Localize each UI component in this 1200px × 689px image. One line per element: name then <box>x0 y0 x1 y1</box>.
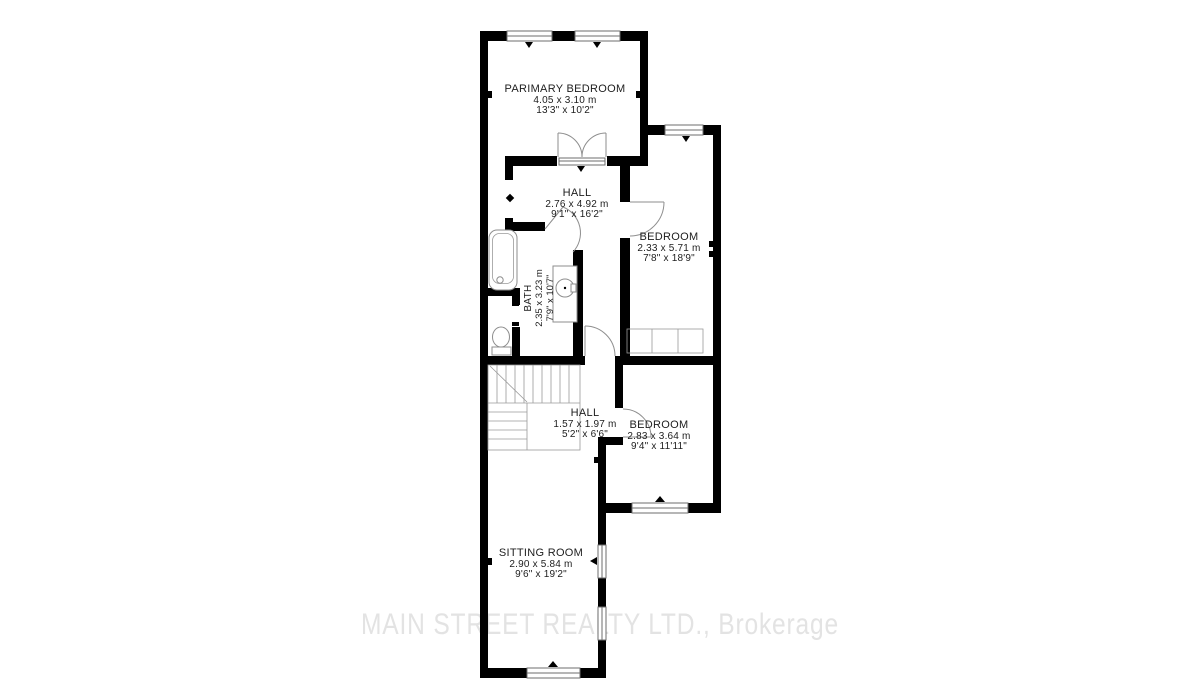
floor-plan-svg: MAIN STREET REALTY LTD., Brokerage <box>0 0 1200 689</box>
window <box>598 545 606 578</box>
window <box>575 31 620 41</box>
window <box>632 503 688 513</box>
window <box>507 31 552 41</box>
room-imperial: 5'2" x 6'6" <box>562 429 608 440</box>
room-metric: 2.35 x 3.23 m <box>534 269 545 327</box>
room-imperial: 7'8" x 18'9" <box>643 253 695 264</box>
room-label-bedroom-lower: BEDROOM 2.83 x 3.64 m 9'4" x 11'11" <box>627 419 690 452</box>
room-imperial: 9'6" x 19'2" <box>515 569 567 580</box>
toilet-icon <box>492 327 511 355</box>
room-imperial: 13'3" x 10'2" <box>536 105 594 116</box>
room-name: PARIMARY BEDROOM <box>505 83 626 95</box>
floor-plan-page: MAIN STREET REALTY LTD., Brokerage <box>0 0 1200 689</box>
room-name: BATH <box>523 284 534 311</box>
room-imperial: 7'9" x 10'7" <box>545 275 556 322</box>
room-imperial: 9'4" x 11'11" <box>631 441 687 452</box>
window <box>527 668 580 678</box>
room-name: BEDROOM <box>630 419 689 431</box>
room-name: HALL <box>571 407 600 419</box>
room-label-bedroom-right: BEDROOM 2.33 x 5.71 m 7'8" x 18'9" <box>637 231 700 264</box>
room-imperial: 9'1" x 16'2" <box>551 209 603 220</box>
room-name: BEDROOM <box>640 231 699 243</box>
window <box>665 125 703 135</box>
room-name: HALL <box>563 187 592 199</box>
room-name: SITTING ROOM <box>499 547 583 559</box>
sink-vanity-icon <box>553 266 577 322</box>
bathtub-icon <box>489 230 517 290</box>
window <box>598 607 606 640</box>
